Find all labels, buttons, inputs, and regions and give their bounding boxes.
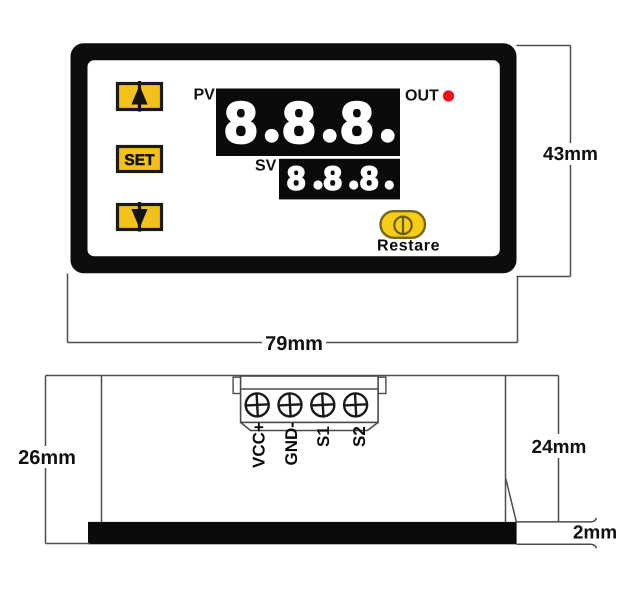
svg-text:VCC+: VCC+ (250, 422, 269, 468)
svg-text:8: 8 (324, 160, 342, 197)
svg-text:SET: SET (124, 152, 155, 169)
svg-text:79mm: 79mm (265, 333, 323, 355)
svg-text:SV: SV (255, 158, 277, 175)
svg-text:Restare: Restare (377, 238, 440, 255)
svg-text:PV: PV (194, 87, 216, 104)
svg-text:8: 8 (360, 160, 378, 197)
svg-text:GND-: GND- (282, 422, 301, 465)
svg-text:43mm: 43mm (543, 144, 598, 165)
svg-text:26mm: 26mm (18, 447, 76, 469)
svg-text:S1: S1 (314, 426, 333, 447)
svg-text:8: 8 (283, 90, 315, 155)
svg-text:24mm: 24mm (532, 437, 587, 458)
svg-text:8: 8 (225, 90, 257, 155)
svg-text:2mm: 2mm (573, 523, 617, 544)
svg-text:S2: S2 (350, 426, 369, 447)
svg-text:8: 8 (341, 90, 373, 155)
svg-text:OUT: OUT (405, 88, 439, 105)
svg-text:8: 8 (287, 160, 305, 197)
